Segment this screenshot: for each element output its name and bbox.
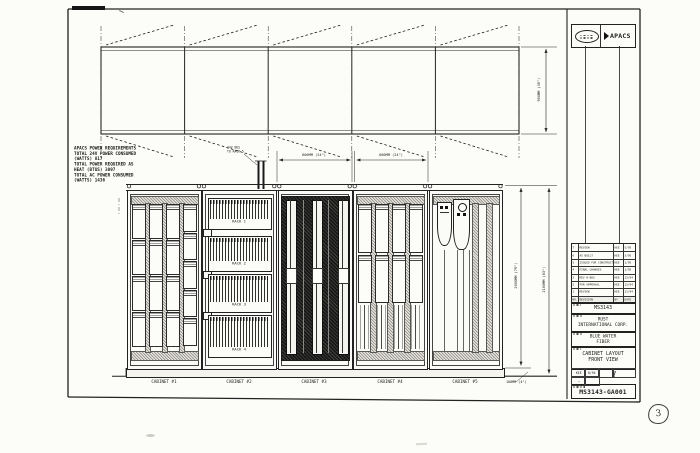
terminal-block	[149, 204, 163, 239]
dim-plan-depth: 900MM (36")	[537, 60, 541, 120]
dim-cabinet4-width: 600MM (24")	[361, 153, 421, 157]
drawing-title: CABINET LAYOUT FRONT VIEW	[573, 351, 633, 363]
revision-by: KEE	[614, 291, 620, 294]
wiring	[360, 305, 369, 349]
revision-date: 12/94	[624, 276, 633, 279]
revision-date: 12/94	[624, 284, 633, 287]
terminal-block	[132, 240, 146, 275]
terminal-block	[132, 312, 146, 347]
revision-row: 7REVIEWKEE5/95	[572, 244, 635, 251]
rail-label-plate	[338, 268, 349, 284]
terminal-block	[183, 318, 197, 346]
terminal-block	[166, 312, 180, 347]
wire-line	[457, 250, 458, 351]
module	[358, 204, 372, 253]
wire-line	[444, 250, 445, 351]
dim-overall-height: 2100MM (83")	[542, 250, 546, 310]
wire-line	[469, 250, 470, 351]
revision-row: 2FOR APPROVALKEE12/94	[572, 281, 635, 288]
terminal-block	[132, 204, 146, 239]
revision-no: 7	[572, 246, 574, 249]
cabinet-4-label: CABINET #4	[352, 379, 427, 384]
revision-no: 4	[572, 269, 574, 272]
terminal-block	[149, 312, 163, 347]
column-rule	[619, 46, 620, 243]
revision-by: KEE	[614, 276, 620, 279]
oval-logo	[575, 30, 599, 43]
module	[409, 204, 423, 253]
wiring	[150, 346, 160, 347]
logo-box: APACS	[571, 24, 636, 48]
scan-mark	[72, 6, 105, 10]
terminal-block	[166, 240, 180, 275]
revision-by: KEE	[614, 269, 620, 272]
rack-2-label: RACK 2	[202, 261, 277, 266]
revision-desc: REV H-BUS	[579, 276, 595, 279]
dim-cabinet-height: 2000MM (79")	[514, 246, 518, 306]
revision-no: 2	[572, 284, 574, 287]
apacs-mark-icon	[604, 32, 609, 40]
wiring	[411, 305, 420, 349]
rack-4-label: RACK 4	[202, 347, 277, 352]
terminal-block	[183, 233, 197, 261]
revision-table: 7REVIEWKEE5/956AS BUILTKEE3/955ISSUED FO…	[571, 243, 636, 304]
revision-desc: FOR APPROVAL	[579, 284, 600, 287]
terminal-block	[166, 276, 180, 311]
logo-divider	[600, 25, 601, 47]
module	[375, 204, 389, 253]
cabinet-3-label: CABINET #3	[277, 379, 352, 384]
module	[392, 255, 406, 303]
panel-seam	[303, 200, 304, 353]
drawing-sheet: APACS POWER REQUIREMENTS TOTAL 24V POWER…	[0, 0, 700, 453]
revision-desc: REVIEW	[579, 291, 590, 294]
revision-no: 5	[572, 261, 574, 264]
revision-desc: REVISION	[579, 298, 593, 301]
revision-row: 4FINAL CHANGESKEE1/95	[572, 266, 635, 273]
rail-label-plate	[312, 268, 323, 284]
card-slots	[210, 280, 268, 302]
revision-date: 11/94	[624, 291, 633, 294]
module	[409, 255, 423, 303]
revision-no: NO.	[572, 298, 578, 301]
card-slots	[210, 204, 268, 219]
bus-note: 24V BUS TO RACK 5	[227, 146, 244, 154]
revision-by: KEE	[614, 246, 620, 249]
wiring	[133, 346, 143, 347]
terminal-block	[149, 240, 163, 275]
revision-date: 3/95	[624, 254, 631, 257]
revision-no: 6	[572, 254, 574, 257]
revision-date: 1/95	[624, 269, 631, 272]
power-notes: APACS POWER REQUIREMENTS TOTAL 24V POWER…	[74, 146, 136, 184]
rack-1-label: RACK 1	[202, 219, 277, 224]
revision-row: 6AS BUILTKEE3/95	[572, 251, 635, 258]
card-slots	[210, 242, 268, 261]
job-number: MS3143	[573, 305, 633, 311]
revision-row: 5ISSUED FOR CONSTRUCTIONKEE1/95	[572, 259, 635, 266]
revision-desc: ISSUED FOR CONSTRUCTION	[579, 261, 613, 264]
revision-row: 3REV H-BUSKEE12/94	[572, 274, 635, 281]
apacs-logo: APACS	[610, 32, 631, 40]
stamp-number: 3	[655, 409, 662, 420]
empty-cell	[584, 376, 600, 386]
dim-cabinet3-width: 600MM (24")	[284, 153, 344, 157]
revision-row: 1REVIEWKEE11/94	[572, 288, 635, 295]
dim-base-height: 100MM (4")	[506, 380, 526, 384]
revision-by: BY	[614, 298, 618, 301]
drawn-by: KEE	[576, 371, 582, 375]
revision-by: KEE	[614, 261, 620, 264]
revision-desc: REVIEW	[579, 246, 590, 249]
revision-date: 1/95	[624, 261, 631, 264]
wire-line	[463, 250, 464, 351]
module	[358, 255, 372, 303]
date: 8/94	[588, 371, 596, 375]
breaker	[453, 199, 470, 250]
drawing-number: MS3143-GA001	[573, 388, 633, 396]
power-supply	[437, 202, 452, 246]
cabinet-2-label: CABINET #2	[201, 379, 276, 384]
module	[392, 204, 406, 253]
duct	[472, 203, 479, 353]
rack-3-label: RACK 3	[202, 302, 277, 307]
terminal-block	[183, 261, 197, 289]
terminal-block	[149, 276, 163, 311]
project-name: BLUE WATER FIBER	[573, 334, 633, 345]
rail-label-plate	[286, 268, 297, 284]
revision-desc: FINAL CHANGES	[579, 269, 601, 272]
module	[375, 255, 389, 303]
duct	[486, 203, 493, 353]
column-rule	[585, 46, 586, 243]
revision-no: 3	[572, 276, 574, 279]
revision-date: DATE	[624, 298, 631, 301]
wiring	[394, 305, 403, 349]
wiring	[377, 305, 386, 349]
terminal-block	[132, 276, 146, 311]
scale-value: —	[578, 379, 580, 383]
panel-seam	[328, 200, 329, 353]
revision-by: KEE	[614, 254, 620, 257]
scan-mark	[146, 434, 155, 437]
wiring	[167, 346, 177, 347]
revision-by: KEE	[614, 284, 620, 287]
revision-desc: AS BUILT	[579, 254, 593, 257]
revision-no: 1	[572, 291, 574, 294]
company-name: RUST INTERNATIONAL CORP.	[573, 317, 633, 328]
cabinet-5-label: CABINET #5	[428, 379, 503, 384]
terminal-block	[166, 204, 180, 239]
revision-date: 5/95	[624, 246, 631, 249]
terminal-block	[183, 204, 197, 232]
card-slots	[210, 321, 268, 347]
cabinet-1-label: CABINET #1	[126, 379, 201, 384]
terminal-block	[183, 290, 197, 318]
